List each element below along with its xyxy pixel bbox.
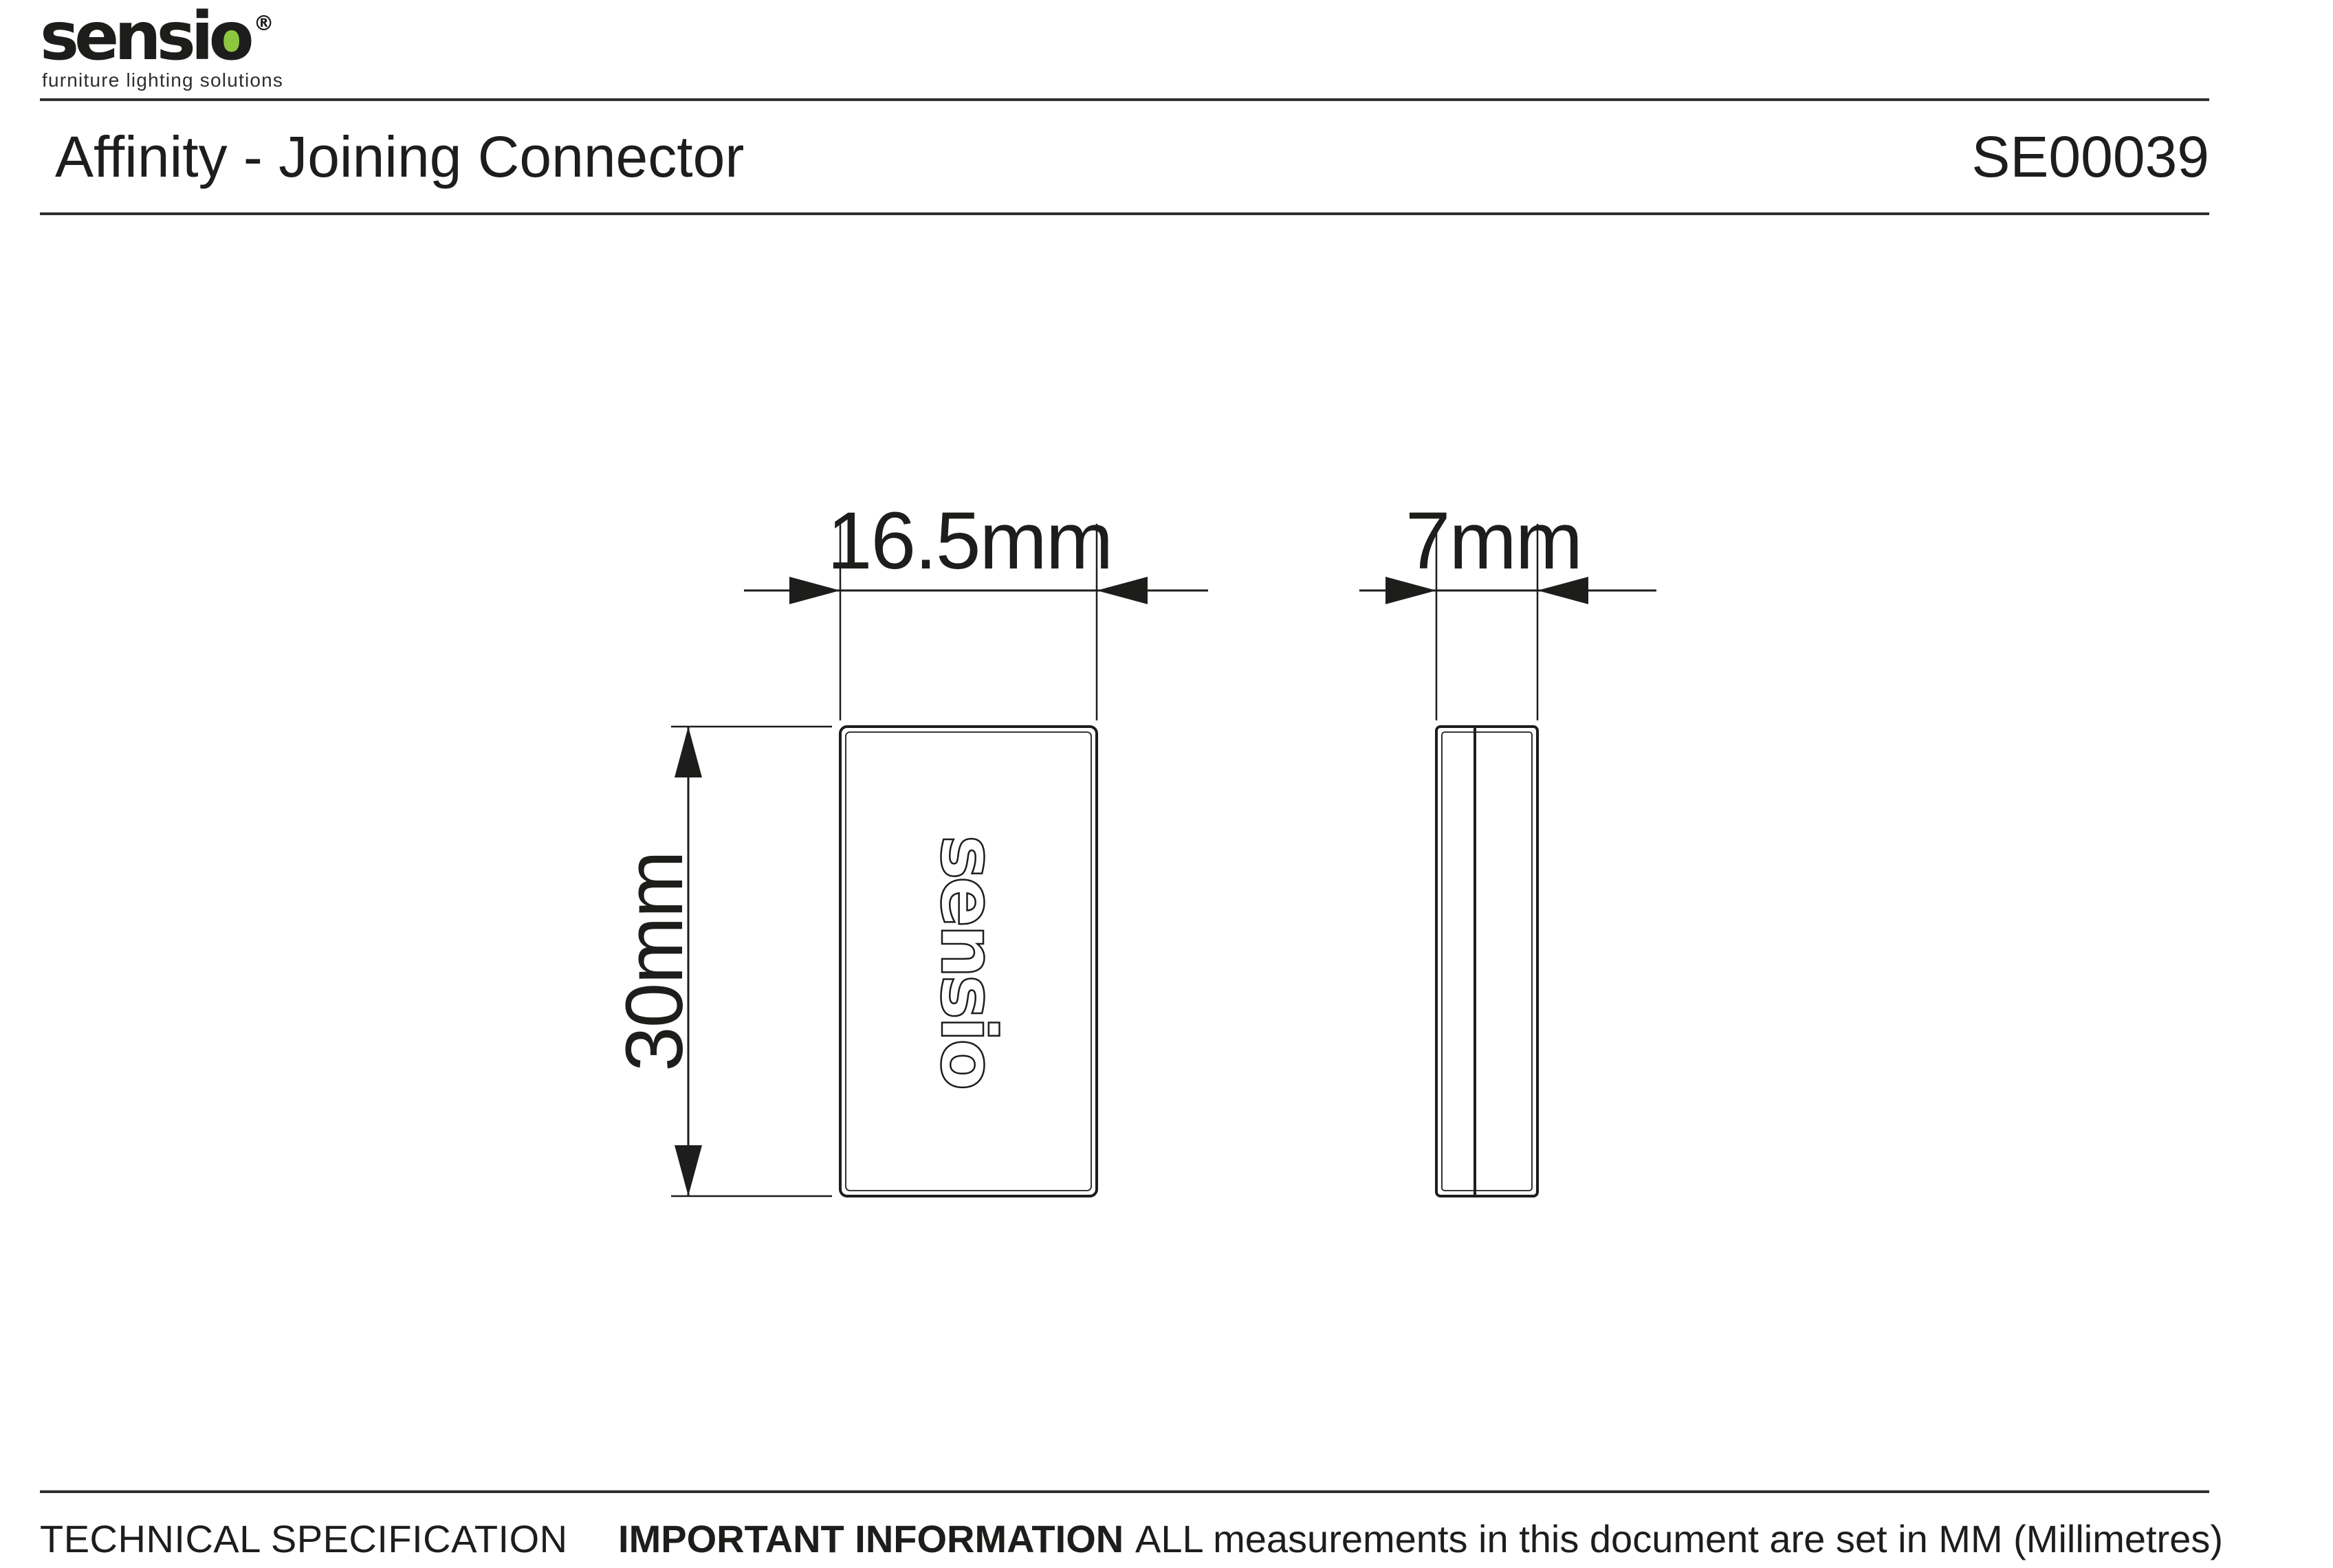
arrow-right-icon xyxy=(1385,577,1436,604)
side-depth-dimension xyxy=(1359,524,1656,720)
footer-important-info: IMPORTANT INFORMATIONALL measurements in… xyxy=(618,1516,2223,1561)
arrow-left-icon xyxy=(1097,577,1148,604)
embossed-sensio-logo: sensio xyxy=(924,835,1012,1087)
arrow-left-icon xyxy=(1537,577,1588,604)
side-view-outline xyxy=(1436,727,1537,1196)
technical-drawing: sensio xyxy=(0,0,2333,1568)
arrow-right-icon xyxy=(789,577,840,604)
connector-side-view xyxy=(1436,727,1537,1196)
arrow-down-icon xyxy=(675,1145,702,1196)
footer-divider xyxy=(40,1490,2209,1493)
spec-sheet-page: sensio® furniture lighting solutions Aff… xyxy=(0,0,2333,1568)
footer-doc-type: TECHNICAL SPECIFICATION xyxy=(40,1516,568,1561)
footer-important-info-text: ALL measurements in this document are se… xyxy=(1135,1517,2223,1560)
wordmark-o-green-dot-icon: o xyxy=(209,5,250,68)
front-height-dimension xyxy=(671,727,832,1196)
footer-important-info-heading: IMPORTANT INFORMATION xyxy=(618,1517,1124,1560)
side-view-inner-contour xyxy=(1442,732,1532,1191)
arrow-up-icon xyxy=(675,727,702,777)
connector-front-view: sensio xyxy=(840,727,1097,1196)
front-width-dimension xyxy=(744,524,1208,720)
wordmark-o-letter: o xyxy=(209,0,250,75)
